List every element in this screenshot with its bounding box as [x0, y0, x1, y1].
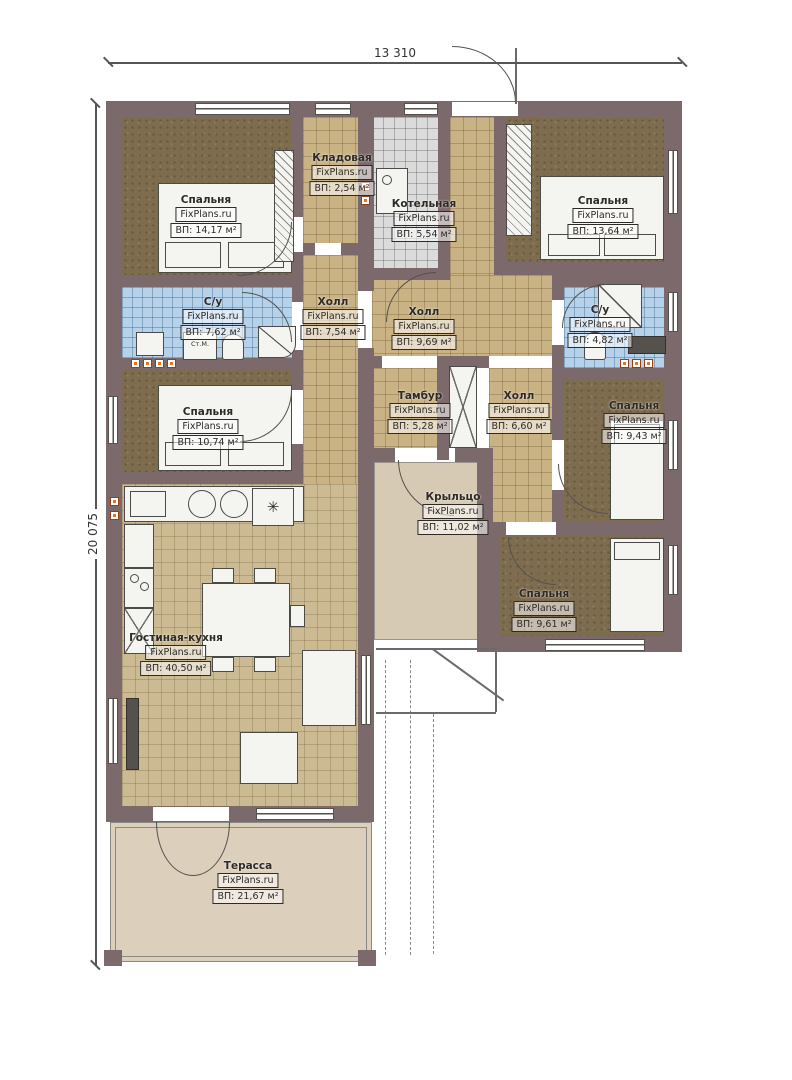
vent-marker [131, 359, 140, 368]
window [108, 698, 118, 764]
room-area: ВП: 5,54 м² [391, 227, 456, 242]
room-name: Терасса [212, 860, 283, 872]
room-name: С/у [180, 296, 245, 308]
watermark: FixPlans.ru [177, 419, 238, 434]
pillow [614, 542, 660, 560]
room-label-storage: Кладовая FixPlans.ru ВП: 2,54 м² [309, 152, 374, 196]
roof-overhang-line [432, 648, 504, 701]
kitchen-cabinet [124, 524, 154, 568]
closet [449, 366, 477, 448]
floor-plan: ✳ Ст.М. Спальня FixPlans.ru ВП: 14,1 [0, 0, 792, 1080]
wall [292, 350, 303, 390]
room-area: ВП: 2,54 м² [309, 181, 374, 196]
door-leaf [515, 48, 517, 104]
watermark: FixPlans.ru [182, 309, 243, 324]
room-label-bedroom-top-right: Спальня FixPlans.ru ВП: 13,64 м² [567, 195, 638, 239]
watermark: FixPlans.ru [422, 504, 483, 519]
wall [552, 345, 564, 440]
room-area: ВП: 5,28 м² [387, 419, 452, 434]
terrace-post [104, 950, 122, 966]
room-label-bedroom-top-left: Спальня FixPlans.ru ВП: 14,17 м² [170, 194, 241, 238]
wall [494, 262, 664, 275]
room-area: ВП: 7,62 м² [180, 325, 245, 340]
vent-marker [620, 359, 629, 368]
roof-overhang-dashed-line [433, 714, 434, 954]
room-area: ВП: 7,54 м² [300, 325, 365, 340]
watermark: FixPlans.ru [389, 403, 450, 418]
room-name: Тамбур [387, 390, 452, 402]
floor-hall-west [303, 255, 358, 484]
watermark: FixPlans.ru [145, 645, 206, 660]
kitchen-sink-unit [124, 568, 154, 608]
watermark: FixPlans.ru [569, 317, 630, 332]
window [668, 292, 678, 332]
kitchen-sink [130, 491, 166, 517]
vent-marker [361, 196, 370, 205]
room-area: ВП: 13,64 м² [567, 224, 638, 239]
fridge: ✳ [252, 488, 294, 526]
room-label-hall-center: Холл FixPlans.ru ВП: 9,69 м² [391, 306, 456, 350]
vent-marker [110, 497, 119, 506]
stove-burner-icon [220, 490, 248, 518]
room-label-living-kitchen: Гостиная-кухня FixPlans.ru ВП: 40,50 м² [129, 632, 223, 676]
fridge-icon: ✳ [253, 489, 293, 525]
chair [254, 568, 276, 583]
room-name: Спальня [601, 400, 666, 412]
room-area: ВП: 9,43 м² [601, 429, 666, 444]
window [668, 545, 678, 595]
room-label-hall-east: Холл FixPlans.ru ВП: 6,60 м² [486, 390, 551, 434]
roof-overhang-dashed-line [385, 660, 386, 955]
wall [552, 368, 664, 380]
watermark: FixPlans.ru [513, 601, 574, 616]
room-label-tambour: Тамбур FixPlans.ru ВП: 5,28 м² [387, 390, 452, 434]
watermark: FixPlans.ru [302, 309, 363, 324]
vent-marker [632, 359, 641, 368]
dimension-height-label: 20 075 [86, 509, 100, 559]
vent-marker [155, 359, 164, 368]
watermark: FixPlans.ru [488, 403, 549, 418]
window [404, 103, 438, 115]
wardrobe [506, 124, 532, 236]
sink [136, 332, 164, 356]
wall [341, 243, 358, 255]
dimension-line-top [108, 62, 682, 64]
wall [362, 448, 395, 462]
boiler-dial-icon [382, 175, 392, 185]
room-name: Спальня [567, 195, 638, 207]
wall [368, 268, 450, 280]
wall [106, 101, 682, 117]
pillow [165, 242, 221, 268]
room-name: Котельная [391, 198, 456, 210]
room-name: Крыльцо [417, 491, 488, 503]
wall [552, 490, 564, 522]
room-area: ВП: 11,02 м² [417, 520, 488, 535]
room-label-bedroom-mid-left: Спальня FixPlans.ru ВП: 10,74 м² [172, 406, 243, 450]
room-area: ВП: 9,61 м² [511, 617, 576, 632]
watermark: FixPlans.ru [217, 873, 278, 888]
window [315, 103, 351, 115]
window [545, 639, 645, 651]
room-name: Спальня [511, 588, 576, 600]
watermark: FixPlans.ru [572, 208, 633, 223]
wall [122, 275, 303, 287]
chair [290, 605, 305, 627]
dish-icon [140, 582, 149, 591]
window [195, 103, 290, 115]
room-name: Кладовая [309, 152, 374, 164]
window [361, 655, 371, 725]
chair [254, 657, 276, 672]
terrace-post [358, 950, 376, 966]
room-area: ВП: 9,69 м² [391, 335, 456, 350]
dimension-width-label: 13 310 [370, 46, 420, 60]
room-label-boiler-room: Котельная FixPlans.ru ВП: 5,54 м² [391, 198, 456, 242]
wall [486, 522, 506, 535]
vent-marker [110, 511, 119, 520]
room-label-hall-west: Холл FixPlans.ru ВП: 7,54 м² [300, 296, 365, 340]
watermark: FixPlans.ru [393, 211, 454, 226]
wall [556, 522, 664, 535]
watermark: FixPlans.ru [311, 165, 372, 180]
door-arc [452, 46, 516, 103]
window [668, 150, 678, 214]
room-label-bathroom-left: С/у FixPlans.ru ВП: 7,62 м² [180, 296, 245, 340]
dish-icon [130, 574, 139, 583]
room-label-bedroom-right: Спальня FixPlans.ru ВП: 9,43 м² [601, 400, 666, 444]
stove-burner-icon [188, 490, 216, 518]
room-name: Холл [391, 306, 456, 318]
room-area: ВП: 14,17 м² [170, 223, 241, 238]
wall [362, 356, 382, 368]
vent-marker [143, 359, 152, 368]
room-label-terrace: Терасса FixPlans.ru ВП: 21,67 м² [212, 860, 283, 904]
vent-marker [644, 359, 653, 368]
window [108, 396, 118, 444]
floor-entry-corridor [450, 117, 494, 275]
wall [552, 287, 564, 300]
room-area: ВП: 10,74 м² [172, 435, 243, 450]
vent-marker [167, 359, 176, 368]
washing-machine-label: Ст.М. [184, 341, 216, 348]
wall [455, 448, 477, 462]
room-label-bedroom-bottom-right: Спальня FixPlans.ru ВП: 9,61 м² [511, 588, 576, 632]
watermark: FixPlans.ru [603, 413, 664, 428]
coffee-table [240, 732, 298, 784]
wall [486, 535, 500, 636]
watermark: FixPlans.ru [393, 319, 454, 334]
window [668, 420, 678, 470]
terrace-door-gap [153, 807, 229, 821]
room-name: С/у [567, 304, 632, 316]
entry-door-gap [452, 102, 518, 116]
roof-overhang-line [376, 712, 496, 714]
wall [358, 448, 374, 822]
room-name: Холл [486, 390, 551, 402]
wall [438, 117, 450, 268]
tv [126, 698, 139, 770]
chair [212, 568, 234, 583]
room-area: ВП: 6,60 м² [486, 419, 551, 434]
wall [122, 472, 303, 484]
wall [494, 117, 506, 262]
room-area: ВП: 4,82 м² [567, 333, 632, 348]
roof-overhang-line [495, 648, 497, 712]
room-label-bathroom-right: С/у FixPlans.ru ВП: 4,82 м² [567, 304, 632, 348]
room-name: Спальня [170, 194, 241, 206]
watermark: FixPlans.ru [175, 207, 236, 222]
room-name: Холл [300, 296, 365, 308]
roof-overhang-dashed-line [410, 660, 411, 955]
sofa [302, 650, 356, 726]
room-label-porch: Крыльцо FixPlans.ru ВП: 11,02 м² [417, 491, 488, 535]
room-name: Спальня [172, 406, 243, 418]
room-name: Гостиная-кухня [129, 632, 223, 644]
room-area: ВП: 21,67 м² [212, 889, 283, 904]
wall [303, 243, 315, 255]
room-area: ВП: 40,50 м² [140, 661, 211, 676]
window [256, 808, 334, 820]
vanity [628, 336, 666, 354]
